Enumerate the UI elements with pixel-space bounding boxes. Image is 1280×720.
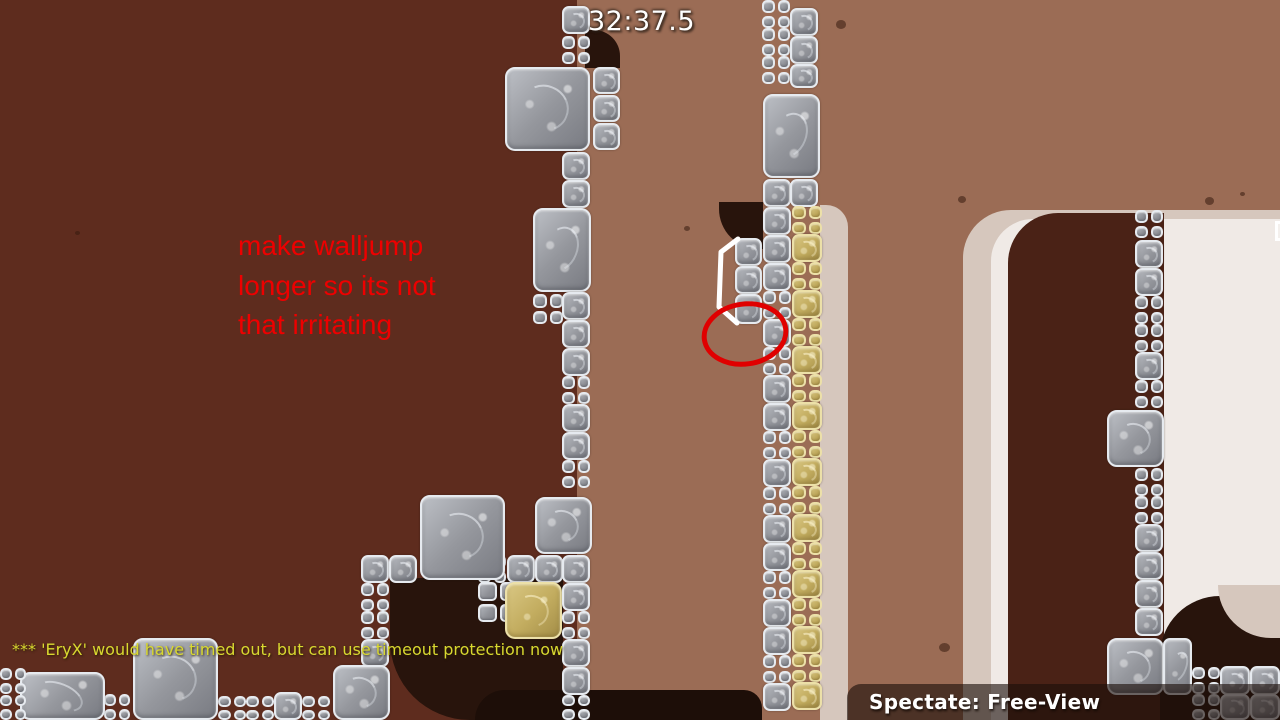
gray-tile	[763, 319, 791, 347]
gray-tile	[1135, 580, 1163, 608]
gray-tile	[763, 207, 791, 235]
gold-tile	[792, 654, 822, 682]
gray-tile	[763, 263, 791, 291]
dirt-speck	[836, 20, 846, 29]
gray-tile	[763, 683, 791, 711]
gray-tile	[1135, 210, 1163, 238]
gray-tile	[763, 459, 791, 487]
gray-tile	[763, 179, 791, 207]
gray-tile	[763, 655, 791, 683]
gray-tile	[562, 583, 590, 611]
note-line-3: that irritating	[238, 305, 436, 345]
gray-tile	[562, 639, 590, 667]
gray-tile	[1135, 296, 1163, 324]
gray-tile	[763, 627, 791, 655]
dirt-speck	[1205, 197, 1214, 205]
dirt-speck	[1240, 192, 1245, 196]
gray-tile	[533, 208, 591, 292]
gold-tile	[505, 582, 562, 639]
gray-tile	[763, 94, 820, 178]
gray-tile	[505, 67, 590, 151]
gray-tile	[790, 36, 818, 64]
gray-tile	[1135, 496, 1163, 524]
gray-tile	[762, 28, 790, 56]
gold-tile	[792, 346, 822, 374]
gray-tile	[763, 431, 791, 459]
gray-tile	[562, 460, 590, 488]
gray-tile	[763, 543, 791, 571]
gray-tile	[20, 672, 105, 720]
gold-tile	[792, 514, 822, 542]
gray-tile	[1107, 410, 1164, 467]
gray-tile	[1135, 524, 1163, 552]
race-timer: 32:37.5	[588, 6, 695, 37]
dirt-speck	[958, 196, 966, 203]
gold-tile	[792, 682, 822, 710]
game-viewport[interactable]: make walljump longer so its not that irr…	[0, 0, 1280, 720]
gray-tile	[333, 665, 390, 720]
gray-tile	[1135, 324, 1163, 352]
gray-tile	[562, 611, 590, 639]
gray-tile	[763, 235, 791, 263]
gray-tile	[562, 292, 590, 320]
gray-tile	[361, 555, 389, 583]
gray-tile	[562, 432, 590, 460]
background-beige-strip	[820, 205, 848, 720]
gray-tile	[762, 0, 790, 28]
gray-tile	[1135, 608, 1163, 636]
gray-tile	[535, 555, 563, 583]
gray-tile	[1135, 240, 1163, 268]
gray-tile	[1135, 468, 1163, 496]
map-note-text: make walljump longer so its not that irr…	[238, 226, 436, 345]
offscreen-ui-edge	[1275, 221, 1280, 241]
gold-tile	[792, 318, 822, 346]
gray-tile	[593, 95, 620, 122]
spectate-panel: Spectate: Free-View	[847, 684, 1280, 720]
dirt-speck	[684, 226, 690, 231]
gray-tile	[763, 487, 791, 515]
note-line-1: make walljump	[238, 226, 436, 266]
gray-tile	[420, 495, 505, 580]
gray-tile	[218, 696, 246, 720]
gray-tile	[790, 8, 818, 36]
gold-tile	[792, 626, 822, 654]
gold-tile	[792, 290, 822, 318]
gray-tile	[562, 6, 590, 34]
note-line-2: longer so its not	[238, 266, 436, 306]
gray-tile	[1135, 380, 1163, 408]
cave-strip-bottom	[475, 690, 762, 720]
gray-tile	[763, 571, 791, 599]
gray-tile	[562, 667, 590, 695]
gray-tile	[1135, 268, 1163, 296]
gray-tile	[593, 123, 620, 150]
gray-tile	[790, 179, 818, 207]
spectate-mode-label: Spectate: Free-View	[869, 684, 1100, 720]
console-message: *** 'EryX' would have timed out, but can…	[12, 640, 563, 659]
gold-tile	[792, 570, 822, 598]
gold-tile	[792, 542, 822, 570]
gold-tile	[792, 486, 822, 514]
gray-tile	[0, 695, 26, 720]
gray-tile	[762, 56, 790, 84]
gray-tile	[735, 266, 762, 294]
gray-tile	[389, 555, 417, 583]
gray-tile	[562, 555, 590, 583]
gray-tile	[593, 67, 620, 94]
gray-tile	[562, 348, 590, 376]
gray-tile	[763, 599, 791, 627]
gray-tile	[562, 36, 590, 64]
gray-tile	[1135, 352, 1163, 380]
gray-tile	[562, 180, 590, 208]
gold-tile	[792, 402, 822, 430]
gold-tile	[792, 234, 822, 262]
gray-tile	[507, 555, 535, 583]
gray-tile	[274, 692, 302, 720]
gray-tile	[1135, 552, 1163, 580]
gray-tile	[104, 694, 130, 720]
gray-tile	[735, 294, 762, 324]
gray-tile	[790, 64, 818, 88]
dirt-speck	[939, 643, 950, 652]
gray-tile	[763, 291, 791, 319]
gray-tile	[735, 238, 762, 266]
gray-tile	[763, 375, 791, 403]
gray-tile	[763, 347, 791, 375]
gray-tile	[562, 376, 590, 404]
gray-tile	[246, 696, 274, 720]
gray-tile	[361, 611, 389, 639]
gray-tile	[562, 320, 590, 348]
gold-tile	[792, 598, 822, 626]
gray-tile	[763, 515, 791, 543]
gray-tile	[562, 152, 590, 180]
gold-tile	[792, 374, 822, 402]
gold-tile	[792, 458, 822, 486]
gray-tile	[302, 696, 330, 720]
gold-tile	[792, 206, 822, 234]
gray-tile	[562, 695, 590, 720]
gray-tile	[533, 294, 563, 324]
gray-tile	[763, 403, 791, 431]
gold-tile	[792, 262, 822, 290]
gray-tile	[562, 404, 590, 432]
gray-tile	[361, 583, 389, 611]
gray-tile	[0, 668, 26, 694]
gray-tile	[535, 497, 592, 554]
gold-tile	[792, 430, 822, 458]
